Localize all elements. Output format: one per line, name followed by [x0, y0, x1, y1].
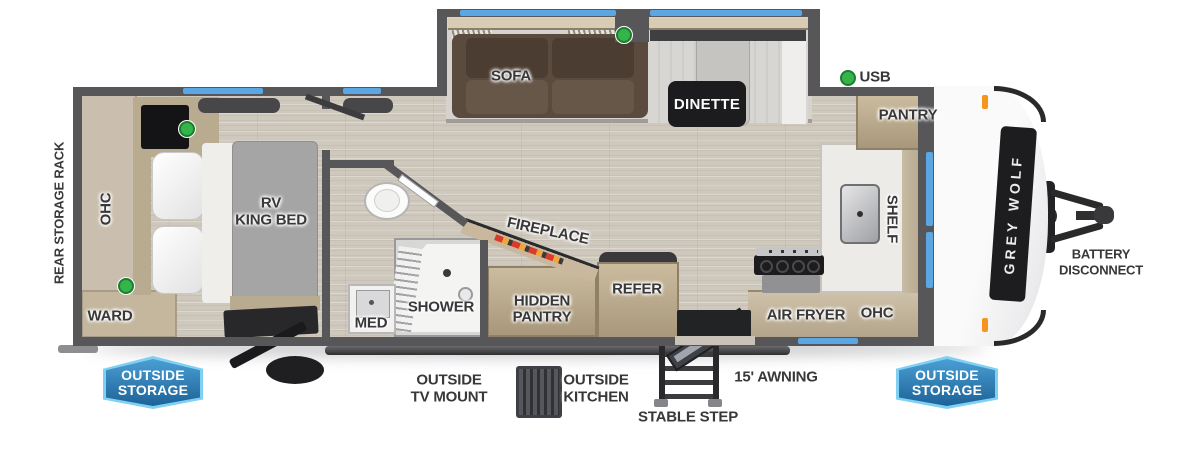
badge-line: OUTSIDE: [121, 368, 185, 383]
led-indicator-icon: [179, 121, 195, 137]
led-indicator-icon: [616, 27, 632, 43]
range-knob-panel: [756, 247, 822, 256]
shelf-label: SHELF: [884, 195, 901, 243]
stable-step-tread: [665, 394, 713, 399]
toilet-seat: [374, 189, 400, 212]
ohc-bedroom-label: OHC: [98, 193, 115, 226]
sofa-seat-cushion: [466, 80, 548, 114]
stable-step-foot: [654, 399, 668, 407]
badge-line: STORAGE: [118, 383, 188, 398]
sink-drain: [369, 300, 374, 305]
hitch-frame-arm: [1050, 222, 1104, 244]
marker-light-icon: [982, 95, 988, 109]
window: [926, 232, 933, 288]
hidden-pantry-label-line1: HIDDEN: [514, 293, 570, 310]
usb-label: USB: [859, 69, 890, 86]
dinette-valance: [648, 18, 808, 30]
dinette-label-box: DINETTE: [668, 81, 746, 127]
shower-drain: [443, 269, 451, 277]
outside-kitchen-vent: [516, 366, 562, 418]
kitchen-sink-drain: [857, 211, 863, 217]
med-label: MED: [355, 315, 388, 332]
pillow: [152, 226, 204, 294]
outside-tv-mount-label-line2: TV MOUNT: [411, 389, 488, 406]
marker-light-icon: [982, 318, 988, 332]
hitch-coupler: [1094, 206, 1114, 224]
refrigerator: [597, 262, 679, 340]
pantry-label: PANTRY: [879, 107, 938, 124]
pillow: [152, 152, 204, 220]
bedroom-table: [223, 306, 318, 339]
window: [798, 338, 858, 344]
shower-pantry-wall: [480, 240, 488, 337]
battery-disconnect-label-line1: BATTERY: [1072, 247, 1131, 262]
bed-side-cabinet: [133, 155, 151, 295]
window: [343, 88, 381, 94]
usb-led-icon: [840, 70, 856, 86]
stable-step-label: STABLE STEP: [638, 409, 738, 426]
bed-sheet: [202, 143, 234, 303]
brand-logo-text: GREY WOLF: [1001, 153, 1025, 274]
outside-kitchen-label-line1: OUTSIDE: [563, 372, 628, 389]
burner-icon: [807, 260, 820, 273]
rear-bumper: [58, 345, 98, 353]
stable-step-rail: [713, 344, 719, 402]
window: [926, 152, 933, 226]
hidden-pantry-label-line2: PANTRY: [513, 309, 572, 326]
outside-storage-badge: OUTSIDE STORAGE: [896, 356, 998, 409]
air-fryer-label: AIR FRYER: [767, 307, 845, 324]
range-body: [762, 275, 820, 293]
entry-mat: [677, 310, 751, 338]
bedroom-wall: [322, 150, 330, 337]
outside-tv-mount-label-line1: OUTSIDE: [416, 372, 481, 389]
awning-rail: [325, 346, 790, 355]
entry-opening: [675, 336, 755, 345]
stable-step-tread: [665, 366, 713, 371]
outside-tv-mount-base: [266, 356, 324, 384]
front-cap-trim-top: [994, 86, 1046, 122]
stable-step-tread: [665, 380, 713, 385]
front-cap-trim-bottom: [994, 310, 1046, 346]
shower-label: SHOWER: [408, 299, 474, 316]
slideout-wall-left: [437, 9, 447, 96]
led-indicator-icon: [118, 278, 134, 294]
refer-label: REFER: [612, 281, 662, 298]
badge-line: STORAGE: [912, 383, 982, 398]
cooktop: [754, 255, 824, 275]
floorplan-canvas: OUTSIDE STORAGE OUTSIDE STORAGE GREY WOL…: [0, 0, 1200, 463]
window: [460, 10, 616, 16]
burner-icon: [792, 260, 805, 273]
sofa-label: SOFA: [491, 68, 531, 85]
slideout-wall-right: [808, 9, 820, 96]
battery-disconnect-label-line2: DISCONNECT: [1059, 263, 1143, 278]
window: [650, 10, 802, 16]
badge-line: OUTSIDE: [915, 368, 979, 383]
sofa: [452, 34, 648, 118]
stable-step-foot: [708, 399, 722, 407]
dinette-label: DINETTE: [674, 96, 740, 113]
sofa-back-cushion: [552, 38, 634, 78]
ward-label: WARD: [87, 308, 132, 325]
burner-icon: [760, 260, 773, 273]
outside-storage-badge: OUTSIDE STORAGE: [103, 356, 203, 409]
dinette-bench: [782, 40, 806, 124]
wall-rear: [73, 87, 82, 346]
range-knobs-icon: [760, 250, 818, 253]
awning-label: 15' AWNING: [734, 369, 818, 386]
dinette-window-pelmet: [650, 30, 806, 41]
sofa-valance: [448, 18, 616, 30]
rear-storage-rack-label: REAR STORAGE RACK: [52, 142, 67, 284]
bedroom-overhead-cabinet: [198, 98, 280, 113]
window: [183, 88, 263, 94]
sofa-seat-cushion: [552, 80, 634, 114]
bed-label-line1: RV: [261, 195, 281, 212]
ohc-kitchen-label: OHC: [861, 305, 894, 322]
burner-icon: [776, 260, 789, 273]
bed-label-line2: KING BED: [235, 212, 307, 229]
outside-kitchen-label-line2: KITCHEN: [563, 389, 628, 406]
